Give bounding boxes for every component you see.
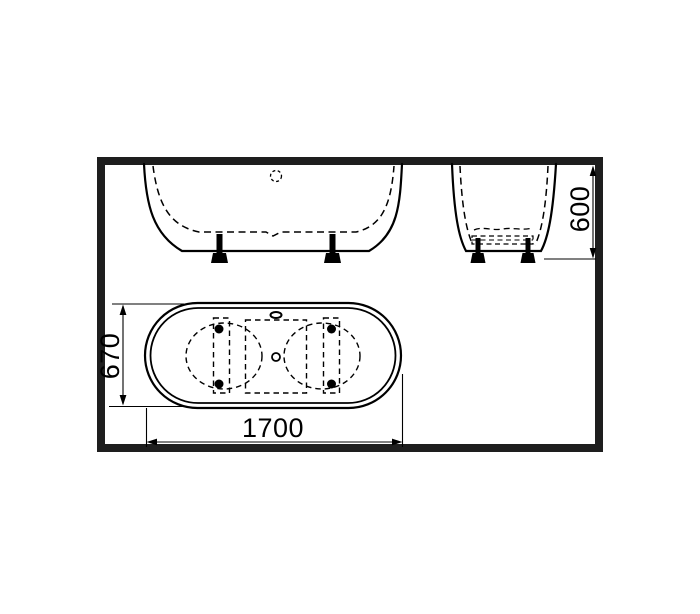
side-elevation-view: [452, 164, 556, 263]
plan-view: [145, 303, 401, 408]
width-dimension: 670: [95, 304, 184, 407]
plan-foot-dot-back-left: [215, 380, 224, 389]
plan-foot-dot-front-right: [327, 325, 336, 334]
width-arrow-down: [120, 395, 127, 406]
width-arrow-up: [120, 305, 127, 316]
width-dimension-label: 670: [95, 333, 125, 380]
length-dimension: 1700: [147, 374, 403, 447]
front-tub-outline: [144, 164, 402, 251]
plan-center-recess-dashed: [246, 320, 307, 393]
side-inner-rim-right-dashed: [535, 166, 548, 245]
plan-foot-dot-back-right: [327, 380, 336, 389]
side-inner-rim-left-dashed: [460, 166, 473, 245]
plan-overflow-hole: [271, 312, 282, 318]
height-dimension-label: 600: [565, 186, 595, 233]
plan-foot-dot-front-left: [215, 325, 224, 334]
front-overflow-hole: [271, 171, 282, 182]
front-right-foot: [324, 234, 341, 263]
plan-drain-hole: [272, 353, 280, 361]
bathtub-technical-drawing: 600 670 1700: [0, 0, 700, 614]
front-elevation-view: [144, 164, 402, 263]
front-left-foot: [211, 234, 228, 263]
side-basin-bottom-dashed: [474, 228, 532, 230]
technical-drawing-canvas: 600 670 1700: [0, 0, 700, 614]
plan-basin-left-end-dashed: [186, 323, 262, 389]
plan-basin-right-end-dashed: [284, 323, 360, 389]
side-tub-outline: [452, 164, 556, 251]
front-tub-inner-rim-dashed: [153, 166, 394, 236]
length-dimension-label: 1700: [242, 413, 304, 443]
